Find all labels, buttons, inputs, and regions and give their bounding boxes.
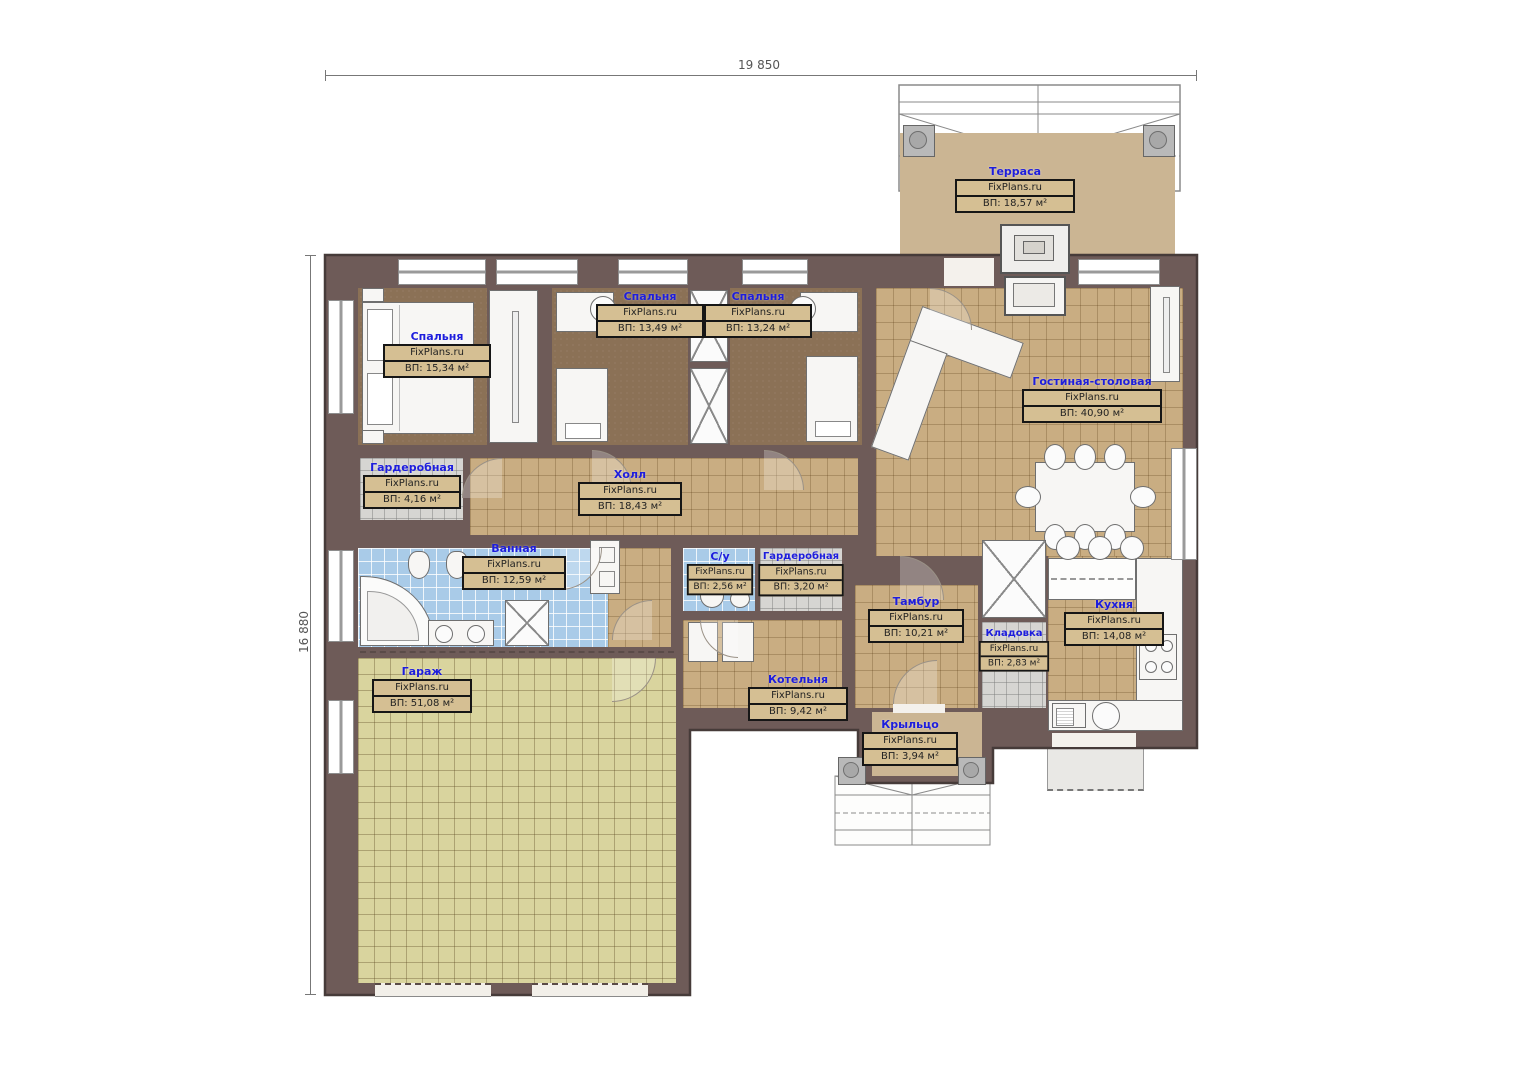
- wardrobe-cabinet: [690, 368, 728, 444]
- watermark: FixPlans.ru: [957, 181, 1073, 197]
- room-label-bathroom: Ванная FixPlans.ruВП: 12,59 м²: [462, 542, 566, 590]
- room-label-garage: Гараж FixPlans.ruВП: 51,08 м²: [372, 665, 472, 713]
- hall-closet: [982, 540, 1046, 618]
- watermark: FixPlans.ru: [689, 566, 752, 581]
- bar-counter: [1048, 558, 1136, 600]
- fireplace: [1000, 224, 1070, 274]
- fireplace-hearth: [1004, 276, 1066, 316]
- room-label-bedroom-3: Спальня FixPlans.ruВП: 13,24 м²: [704, 290, 812, 338]
- bar-stool: [1056, 536, 1080, 560]
- toilet: [408, 551, 430, 579]
- dining-table: [1035, 462, 1135, 532]
- room-label-hall: Холл FixPlans.ruВП: 18,43 м²: [578, 468, 682, 516]
- watermark: FixPlans.ru: [760, 566, 842, 581]
- watermark: FixPlans.ru: [1024, 391, 1160, 407]
- window: [1078, 259, 1160, 285]
- room-label-wardrobe-1: Гардеробная FixPlans.ruВП: 4,16 м²: [363, 461, 461, 509]
- room-label-boiler: Котельня FixPlans.ruВП: 9,42 м²: [748, 673, 848, 721]
- kitchen-door-opening: [1052, 733, 1136, 747]
- window: [1171, 448, 1197, 560]
- watermark: FixPlans.ru: [464, 558, 564, 574]
- room-label-kitchen: Кухня FixPlans.ruВП: 14,08 м²: [1064, 598, 1164, 646]
- porch-post: [958, 757, 986, 785]
- garage-lintel-dash: [360, 651, 674, 653]
- room-label-porch: Крыльцо FixPlans.ruВП: 3,94 м²: [862, 718, 958, 766]
- window: [328, 700, 354, 774]
- window: [496, 259, 578, 285]
- nightstand: [362, 430, 384, 444]
- garage-door: [375, 983, 491, 997]
- bar-stool: [1120, 536, 1144, 560]
- terrace-post: [903, 125, 935, 157]
- radiator: [1150, 286, 1180, 382]
- chair: [1130, 486, 1156, 508]
- watermark: FixPlans.ru: [385, 346, 489, 362]
- watermark: FixPlans.ru: [870, 611, 962, 627]
- watermark: FixPlans.ru: [750, 689, 846, 705]
- room-label-wardrobe-2: Гардеробная FixPlans.ruВП: 3,20 м²: [756, 550, 846, 598]
- window: [618, 259, 688, 285]
- watermark: FixPlans.ru: [580, 484, 680, 500]
- window: [742, 259, 808, 285]
- double-sink: [428, 620, 494, 646]
- watermark: FixPlans.ru: [864, 734, 956, 750]
- bed: [556, 368, 608, 442]
- window: [328, 300, 354, 414]
- watermark: FixPlans.ru: [374, 681, 470, 697]
- bar-stool: [1088, 536, 1112, 560]
- room-label-terrace: Терраса FixPlans.ruВП: 18,57 м²: [955, 165, 1075, 213]
- kitchen-sink: [1092, 702, 1120, 730]
- chair: [1104, 444, 1126, 470]
- terrace-door-opening: [944, 258, 994, 286]
- window: [398, 259, 486, 285]
- window: [328, 550, 354, 642]
- watermark: FixPlans.ru: [365, 477, 459, 493]
- nightstand: [362, 288, 384, 302]
- dishwasher: [1052, 703, 1086, 728]
- room-label-wc: С/у FixPlans.ruВП: 2,56 м²: [684, 550, 756, 598]
- shower: [505, 600, 549, 646]
- watermark: FixPlans.ru: [1066, 614, 1162, 630]
- terrace-post: [1143, 125, 1175, 157]
- dimension-width-label: 19 850: [738, 58, 780, 72]
- bed: [806, 356, 858, 442]
- room-label-vestibule: Тамбур FixPlans.ruВП: 10,21 м²: [868, 595, 964, 643]
- bedroom-1-closet: [489, 290, 538, 443]
- watermark: FixPlans.ru: [598, 306, 702, 322]
- room-label-pantry: Кладовка FixPlans.ruВП: 2,83 м²: [975, 627, 1053, 675]
- watermark: FixPlans.ru: [981, 643, 1048, 657]
- room-label-bedroom-1: Спальня FixPlans.ruВП: 15,34 м²: [383, 330, 491, 378]
- walls: [0, 0, 1528, 1080]
- room-label-living-dining: Гостиная-столовая FixPlans.ruВП: 40,90 м…: [1022, 375, 1162, 423]
- room-label-bedroom-2: Спальня FixPlans.ruВП: 13,49 м²: [596, 290, 704, 338]
- entrance-door-opening: [893, 704, 945, 713]
- chair: [1015, 486, 1041, 508]
- garage-door: [532, 983, 648, 997]
- watermark: FixPlans.ru: [706, 306, 810, 322]
- chair: [1044, 444, 1066, 470]
- floor-plan-canvas: 19 850 16 880: [0, 0, 1528, 1080]
- dimension-height-label: 16 880: [297, 611, 311, 653]
- chair: [1074, 444, 1096, 470]
